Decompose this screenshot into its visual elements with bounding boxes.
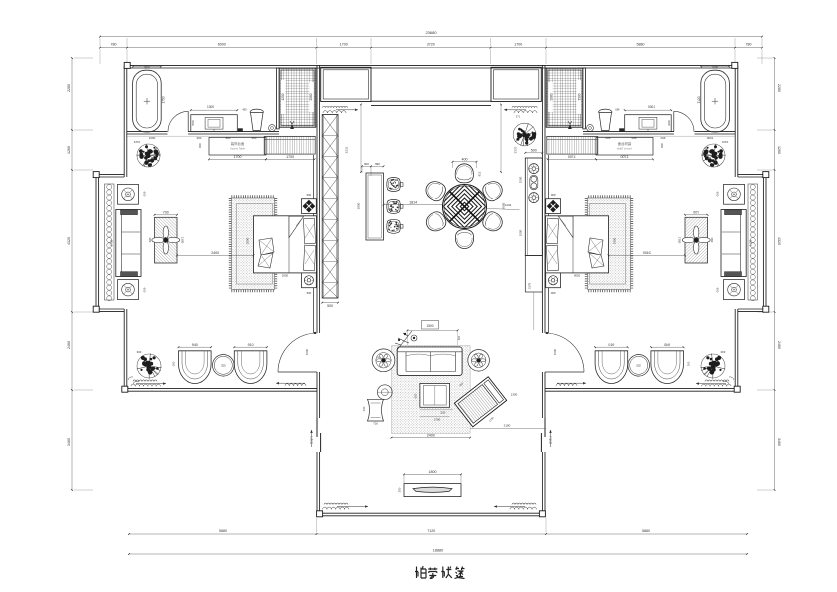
svg-text:5880: 5880: [219, 529, 227, 533]
svg-text:3460: 3460: [777, 438, 781, 446]
svg-text:600: 600: [197, 136, 202, 140]
svg-text:3460: 3460: [67, 438, 71, 446]
svg-text:18880: 18880: [433, 549, 444, 553]
svg-text:500: 500: [307, 193, 312, 197]
svg-text:780: 780: [746, 42, 752, 46]
svg-text:装饰台面: 装饰台面: [231, 141, 245, 146]
svg-text:2700: 2700: [110, 239, 114, 246]
svg-text:800: 800: [198, 143, 202, 148]
svg-text:940: 940: [192, 343, 198, 347]
svg-text:500: 500: [307, 291, 312, 295]
svg-text:800: 800: [144, 65, 150, 69]
svg-text:1260: 1260: [67, 146, 71, 154]
svg-text:1260: 1260: [777, 146, 781, 154]
svg-text:1000: 1000: [305, 348, 309, 355]
svg-text:1814: 1814: [409, 200, 417, 204]
svg-text:1700: 1700: [234, 155, 242, 159]
svg-text:2400: 2400: [211, 251, 219, 255]
svg-text:3720: 3720: [427, 42, 435, 46]
svg-text:1700: 1700: [340, 42, 348, 46]
svg-text:500: 500: [327, 304, 333, 308]
svg-text:350: 350: [398, 487, 402, 492]
svg-text:1500: 1500: [518, 229, 522, 236]
svg-text:100: 100: [172, 361, 176, 366]
svg-text:7120: 7120: [427, 529, 435, 533]
svg-text:1750: 1750: [162, 96, 166, 103]
svg-text:4320: 4320: [777, 237, 781, 245]
svg-text:1300: 1300: [511, 393, 518, 397]
svg-text:812: 812: [477, 171, 481, 176]
svg-text:325: 325: [221, 364, 226, 368]
svg-text:1000: 1000: [149, 136, 156, 140]
svg-text:500: 500: [531, 149, 537, 153]
svg-text:1234: 1234: [505, 203, 512, 207]
svg-text:1500: 1500: [246, 237, 250, 244]
svg-text:2190: 2190: [504, 424, 511, 428]
svg-text:300: 300: [137, 350, 142, 354]
svg-text:1300: 1300: [207, 105, 214, 109]
svg-text:450: 450: [252, 136, 257, 140]
svg-text:2000: 2000: [357, 202, 361, 209]
svg-text:400: 400: [462, 158, 468, 162]
svg-text:6000: 6000: [218, 42, 226, 46]
svg-text:2231: 2231: [345, 146, 349, 153]
svg-text:1500: 1500: [426, 324, 433, 328]
svg-text:600: 600: [143, 192, 147, 197]
svg-text:2280: 2280: [67, 84, 71, 92]
svg-text:1500: 1500: [518, 176, 522, 183]
svg-text:900: 900: [364, 162, 369, 166]
svg-text:500: 500: [191, 120, 195, 125]
svg-text:Φ650: Φ650: [134, 140, 141, 144]
svg-text:800: 800: [226, 136, 231, 140]
svg-text:371: 371: [516, 115, 521, 119]
svg-text:4320: 4320: [67, 237, 71, 245]
svg-text:1700: 1700: [514, 42, 522, 46]
svg-text:3179: 3179: [528, 282, 532, 289]
svg-text:2460: 2460: [777, 341, 781, 349]
svg-text:990: 990: [375, 162, 380, 166]
svg-text:1700: 1700: [286, 155, 294, 159]
svg-text:Accent Table: Accent Table: [230, 147, 245, 151]
svg-text:23680: 23680: [425, 30, 437, 35]
svg-text:910: 910: [248, 343, 254, 347]
svg-text:716: 716: [373, 422, 378, 426]
svg-text:1300: 1300: [181, 237, 185, 244]
svg-text:520: 520: [441, 410, 446, 414]
svg-text:2460: 2460: [67, 341, 71, 349]
svg-text:2280: 2280: [777, 84, 781, 92]
svg-text:450: 450: [242, 108, 247, 112]
svg-text:650: 650: [414, 393, 418, 398]
svg-text:2060: 2060: [309, 93, 313, 100]
svg-text:500: 500: [457, 335, 461, 340]
svg-text:2000: 2000: [282, 274, 289, 278]
svg-text:5880: 5880: [642, 529, 650, 533]
svg-text:380: 380: [148, 237, 152, 242]
svg-text:5880: 5880: [637, 42, 645, 46]
svg-text:2400: 2400: [427, 433, 435, 437]
svg-text:700: 700: [163, 211, 169, 215]
svg-text:780: 780: [111, 42, 117, 46]
svg-text:720: 720: [362, 406, 366, 411]
svg-text:1700: 1700: [434, 417, 441, 421]
svg-text:1200: 1200: [281, 93, 285, 100]
svg-text:1800: 1800: [429, 470, 437, 474]
svg-text:600: 600: [143, 288, 147, 293]
svg-text:推拉门: 推拉门: [310, 436, 314, 444]
